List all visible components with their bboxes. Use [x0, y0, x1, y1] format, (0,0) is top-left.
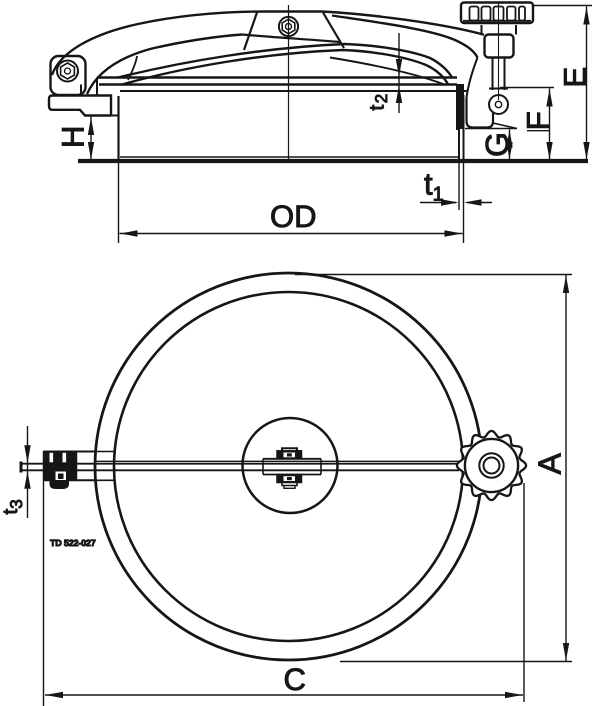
svg-text:E: E: [558, 67, 593, 88]
svg-text:H: H: [56, 126, 91, 148]
svg-text:F: F: [521, 111, 556, 130]
svg-text:TD 522-027: TD 522-027: [50, 538, 96, 548]
svg-text:G: G: [479, 132, 515, 157]
svg-text:A: A: [532, 453, 568, 475]
svg-text:C: C: [284, 662, 306, 697]
svg-text:t1: t1: [424, 167, 444, 206]
svg-text:t2: t2: [366, 94, 392, 111]
svg-text:t3: t3: [0, 499, 26, 514]
svg-text:OD: OD: [270, 199, 317, 234]
